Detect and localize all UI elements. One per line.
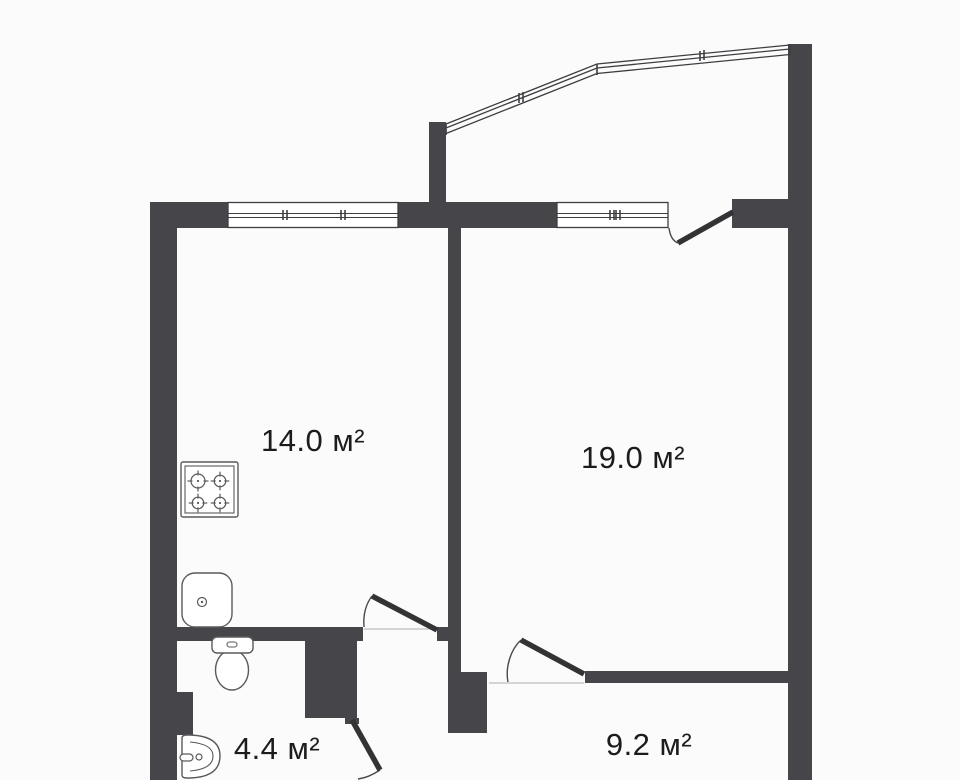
wall-top-kitchen-left xyxy=(150,202,228,228)
kitchen-door xyxy=(364,596,437,630)
doors-layer xyxy=(352,212,733,779)
wall-outer-right xyxy=(788,44,812,780)
floor-plan: 14.0 м² 19.0 м² 4.4 м² 9.2 м² xyxy=(0,0,960,780)
toilet-icon xyxy=(212,637,253,690)
balcony-glazing xyxy=(446,45,790,135)
balcony-door-leaf xyxy=(678,212,733,243)
living-room-door-leaf xyxy=(521,640,584,674)
wall-bathroom-right xyxy=(305,641,357,718)
wall-balcony-left xyxy=(429,122,446,204)
wall-bathroom-left-step xyxy=(177,692,193,735)
washbasin-icon xyxy=(180,735,220,778)
wall-hall-corner xyxy=(448,672,487,733)
living-room-door-swing-arc xyxy=(507,640,521,682)
balcony-door xyxy=(669,212,733,243)
room-label-living-room: 19.0 м² xyxy=(581,440,685,476)
wall-kitchen-door-jamb xyxy=(437,627,448,641)
wall-kitchen-living xyxy=(448,228,461,672)
floor-plan-canvas xyxy=(0,0,960,780)
kitchen-door-leaf xyxy=(372,596,437,630)
kitchen-sink-icon xyxy=(182,573,232,627)
bathroom-door-leaf xyxy=(352,720,380,770)
room-label-kitchen: 14.0 м² xyxy=(261,423,365,459)
wall-outer-left xyxy=(150,202,177,780)
room-label-bathroom: 4.4 м² xyxy=(234,731,320,767)
room-label-bedroom: 9.2 м² xyxy=(606,727,692,763)
stove-icon xyxy=(181,462,238,517)
walls-layer xyxy=(150,44,812,780)
living-window xyxy=(557,203,668,228)
kitchen-door-swing-arc xyxy=(364,596,372,627)
wall-top-middle xyxy=(398,202,557,228)
wall-kitchen-bottom xyxy=(177,627,363,641)
bathroom-door xyxy=(352,720,380,779)
bathroom-door-swing-arc xyxy=(358,770,380,779)
wall-living-bedroom xyxy=(585,671,812,683)
living-room-door xyxy=(489,640,584,683)
kitchen-window xyxy=(228,203,398,228)
balcony-door-swing-arc xyxy=(669,228,678,243)
